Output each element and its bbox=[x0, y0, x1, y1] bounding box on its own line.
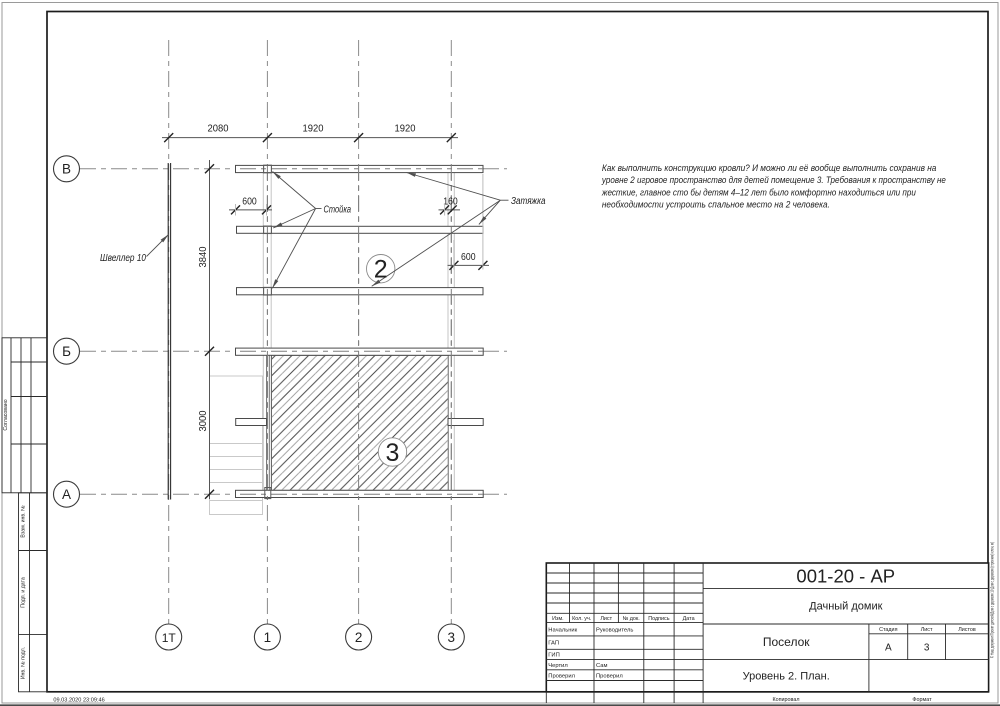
svg-text:жесткие, главное сто бы детям: жесткие, главное сто бы детям 4–12 лет б… bbox=[601, 186, 917, 197]
svg-text:Стойка: Стойка bbox=[324, 205, 352, 216]
svg-text:Поселок: Поселок bbox=[763, 635, 810, 649]
svg-text:Лист: Лист bbox=[600, 616, 612, 622]
svg-text:Начальник: Начальник bbox=[548, 628, 577, 634]
svg-text:Проверил: Проверил bbox=[596, 673, 623, 679]
svg-text:Взам. инв. №: Взам. инв. № bbox=[21, 505, 27, 538]
svg-text:А: А bbox=[885, 643, 892, 654]
svg-text:Изм.: Изм. bbox=[552, 616, 564, 622]
svg-text:3: 3 bbox=[924, 643, 930, 654]
svg-text:Затяжка: Затяжка bbox=[511, 196, 546, 207]
svg-text:Руководитель: Руководитель bbox=[596, 628, 633, 634]
svg-text:001-20 - АР: 001-20 - АР bbox=[796, 566, 895, 587]
svg-text:3: 3 bbox=[448, 630, 456, 645]
svg-text:1920: 1920 bbox=[395, 124, 417, 135]
svg-text:3840: 3840 bbox=[198, 246, 209, 268]
svg-text:Уровень 2. План.: Уровень 2. План. bbox=[743, 671, 830, 683]
svg-text:Формат: Формат bbox=[912, 697, 932, 703]
svg-text:600: 600 bbox=[461, 252, 476, 263]
svg-text:2080: 2080 bbox=[208, 124, 230, 135]
svg-text:А: А bbox=[62, 487, 71, 502]
svg-text:Стадия: Стадия bbox=[879, 627, 897, 633]
svg-text:Лист: Лист bbox=[921, 627, 933, 633]
svg-text:В: В bbox=[62, 162, 71, 177]
svg-text:Как выполнить конструкцию кров: Как выполнить конструкцию кровли? И можн… bbox=[602, 162, 937, 173]
svg-text:600: 600 bbox=[242, 197, 257, 208]
svg-text:1Т: 1Т bbox=[162, 631, 177, 645]
svg-text:Проверил: Проверил bbox=[548, 673, 575, 679]
svg-text:Подп. и дата: Подп. и дата bbox=[21, 577, 27, 608]
svg-text:Копировал: Копировал bbox=[772, 697, 799, 703]
svg-text:Инв. № подл.: Инв. № подл. bbox=[21, 647, 27, 679]
svg-text:Подпись: Подпись bbox=[648, 616, 670, 622]
svg-text:уровне 2 игровое пространство: уровне 2 игровое пространство для детей … bbox=[601, 174, 946, 185]
svg-text:3000: 3000 bbox=[198, 410, 209, 432]
svg-text:Швеллер 10: Швеллер 10 bbox=[100, 253, 146, 264]
svg-text:Б: Б bbox=[62, 344, 71, 359]
svg-text:2: 2 bbox=[374, 256, 388, 284]
svg-text:160: 160 bbox=[443, 197, 458, 208]
svg-text:1920: 1920 bbox=[303, 124, 325, 135]
svg-text:3: 3 bbox=[386, 439, 400, 467]
svg-text:ГИП: ГИП bbox=[548, 653, 559, 659]
svg-text:ГАП: ГАП bbox=[548, 641, 559, 647]
svg-text:Дата: Дата bbox=[683, 616, 695, 622]
svg-text:Листов: Листов bbox=[958, 627, 976, 633]
svg-text:№ док.: № док. bbox=[622, 616, 639, 622]
svg-text:Согласовано: Согласовано bbox=[3, 399, 9, 430]
svg-text:1: 1 bbox=[264, 630, 272, 645]
svg-text:© Наш документ/Проект детской/: © Наш документ/Проект детской/Дом с дере… bbox=[990, 542, 995, 658]
svg-text:2: 2 bbox=[355, 630, 363, 645]
svg-text:09.03.2020 23:09:46: 09.03.2020 23:09:46 bbox=[53, 698, 104, 704]
svg-text:Сам: Сам bbox=[596, 663, 607, 669]
svg-text:Чертил: Чертил bbox=[548, 663, 567, 669]
svg-text:Дачный домик: Дачный домик bbox=[809, 601, 882, 613]
svg-text:необходимости устроить спально: необходимости устроить спальное место на… bbox=[602, 199, 830, 210]
svg-text:Кол. уч.: Кол. уч. bbox=[572, 616, 591, 622]
